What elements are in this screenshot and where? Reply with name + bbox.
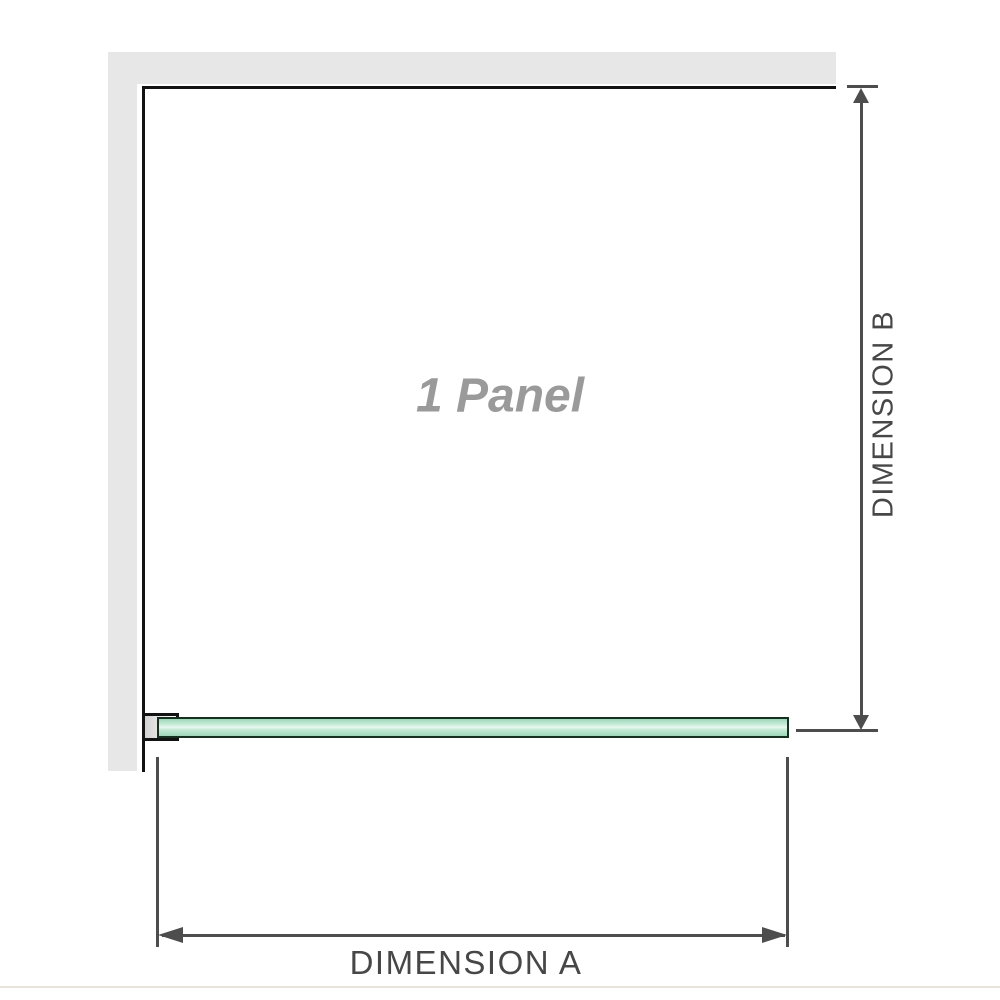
dimension-a-arrow-left-icon	[158, 927, 183, 943]
dimension-b-arrow-down-icon	[853, 715, 869, 730]
image-baseline	[0, 986, 1000, 988]
dimension-b-label: DIMENSION B	[868, 310, 901, 518]
diagram-canvas: 1 Panel DIMENSION B DIMENSION A	[0, 0, 1000, 1000]
wall-segment-left	[108, 52, 137, 771]
dimension-a-extension-right	[786, 757, 789, 947]
dimension-a-line	[162, 934, 785, 937]
dimension-b-arrow-up-icon	[853, 88, 869, 103]
panel-outline	[142, 86, 836, 772]
dimension-a-label: DIMENSION A	[350, 944, 583, 982]
dimension-a-arrow-right-icon	[762, 927, 787, 943]
dimension-a-extension-left	[156, 757, 159, 947]
dimension-b-line	[860, 98, 863, 720]
panel-label: 1 Panel	[416, 369, 584, 424]
wall-segment-top	[108, 52, 836, 84]
glass-panel	[157, 717, 789, 738]
